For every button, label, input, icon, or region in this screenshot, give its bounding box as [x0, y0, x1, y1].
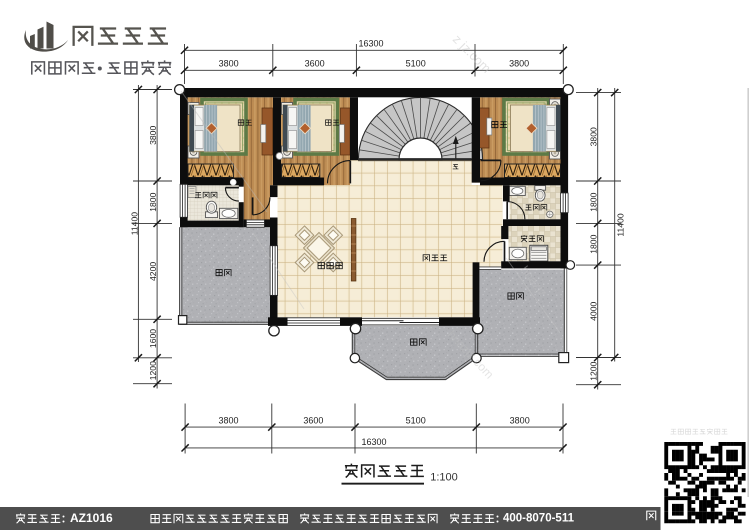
svg-text:1200: 1200	[148, 361, 158, 380]
svg-text:3600: 3600	[305, 59, 325, 69]
svg-text:5100: 5100	[406, 59, 426, 69]
svg-text:1200: 1200	[589, 361, 599, 380]
svg-text:4200: 4200	[148, 262, 158, 281]
svg-text:1800: 1800	[589, 234, 599, 253]
svg-text:16300: 16300	[358, 39, 383, 49]
svg-text:1800: 1800	[589, 192, 599, 211]
svg-text:400-8070-511: 400-8070-511	[503, 513, 575, 525]
svg-text:5100: 5100	[406, 415, 426, 425]
svg-text:1800: 1800	[148, 192, 158, 211]
svg-text:3800: 3800	[148, 126, 158, 145]
svg-text:11400: 11400	[129, 212, 139, 235]
svg-text:1600: 1600	[148, 329, 158, 348]
svg-text:11400: 11400	[616, 213, 626, 236]
svg-text:3800: 3800	[589, 127, 599, 146]
svg-text:3800: 3800	[218, 415, 238, 425]
svg-text:3800: 3800	[509, 59, 529, 69]
svg-text:1:100: 1:100	[430, 471, 458, 483]
svg-text:4000: 4000	[589, 302, 599, 321]
svg-text:3800: 3800	[219, 59, 239, 69]
svg-text:3800: 3800	[510, 415, 530, 425]
svg-text:AZ1016: AZ1016	[70, 511, 113, 525]
svg-text:16300: 16300	[361, 437, 386, 447]
svg-text:3600: 3600	[303, 415, 323, 425]
